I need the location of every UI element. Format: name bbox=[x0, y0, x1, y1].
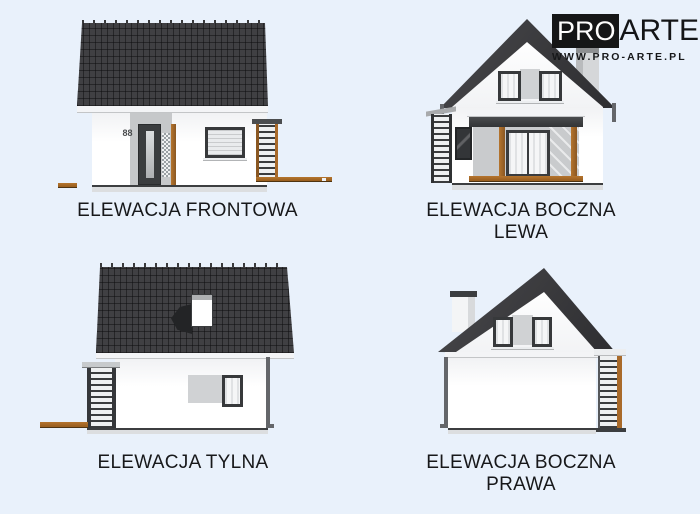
right-foundation bbox=[448, 430, 596, 434]
right-trellis bbox=[598, 356, 622, 428]
rear-wall-panel bbox=[188, 375, 222, 403]
rear-trellis bbox=[87, 368, 116, 428]
pro-arte-logo: PRO ARTE WWW.PRO-ARTE.PL bbox=[552, 14, 694, 63]
rear-foundation bbox=[87, 430, 268, 434]
left-gable-window-sill bbox=[496, 101, 564, 104]
logo-wordmark: PRO ARTE bbox=[552, 14, 694, 48]
left-elevation-label-line1: ELEWACJA BOCZNA bbox=[408, 200, 634, 222]
left-gable-window-2 bbox=[539, 71, 562, 101]
left-elevation-label: ELEWACJA BOCZNA LEWA bbox=[408, 200, 634, 244]
left-gable-panel bbox=[520, 69, 540, 99]
left-porch-deck bbox=[469, 176, 583, 182]
right-trellis-base bbox=[594, 428, 626, 432]
front-doorside-panel bbox=[162, 133, 170, 177]
rear-elevation-label: ELEWACJA TYLNA bbox=[53, 452, 313, 474]
left-elevation-label-line2: LEWA bbox=[408, 222, 634, 244]
left-porch-roof bbox=[469, 117, 583, 127]
right-downspout bbox=[444, 357, 448, 428]
front-eaves-fascia bbox=[77, 106, 268, 113]
front-roof bbox=[77, 20, 268, 106]
right-elevation-label-line1: ELEWACJA BOCZNA bbox=[408, 452, 634, 474]
right-chimney-cap bbox=[450, 291, 477, 297]
rear-roof-ridge-trim bbox=[100, 263, 287, 267]
front-terrace-notch bbox=[322, 178, 326, 181]
right-gable-window-2 bbox=[532, 317, 552, 347]
right-elevation-label-line2: PRAWA bbox=[408, 474, 634, 496]
left-trellis bbox=[431, 114, 452, 183]
front-door bbox=[138, 124, 161, 185]
right-wall bbox=[448, 358, 596, 428]
front-elevation-label: ELEWACJA FRONTOWA bbox=[50, 200, 325, 222]
left-gable-window-1 bbox=[498, 71, 521, 101]
house-number: 88 bbox=[119, 128, 136, 138]
left-dark-window bbox=[455, 127, 472, 160]
blueprint-sheet: PRO ARTE WWW.PRO-ARTE.PL 88 ELEWACJA FRO… bbox=[0, 0, 700, 514]
left-patio-door bbox=[506, 130, 550, 177]
left-foundation bbox=[452, 185, 603, 190]
front-porch-post bbox=[171, 124, 176, 185]
front-terrace-deck bbox=[256, 177, 332, 182]
rear-terrace-deck bbox=[40, 422, 88, 428]
rear-roof-skylight bbox=[191, 294, 213, 327]
left-patio-door-divider bbox=[527, 133, 529, 174]
front-door-glass bbox=[146, 131, 154, 178]
left-porch-post-1 bbox=[499, 127, 505, 177]
right-trellis-cap bbox=[594, 349, 626, 356]
front-left-deck-strip bbox=[58, 183, 77, 188]
front-window bbox=[205, 127, 245, 158]
right-gable-panel bbox=[512, 315, 533, 345]
logo-website: WWW.PRO-ARTE.PL bbox=[552, 51, 694, 63]
rear-downspout bbox=[266, 357, 270, 428]
right-gable-window-1 bbox=[493, 317, 513, 347]
logo-arte-text: ARTE bbox=[620, 14, 699, 48]
logo-pro-text: PRO bbox=[552, 14, 619, 48]
front-window-sill bbox=[203, 158, 247, 161]
front-trellis bbox=[256, 124, 278, 181]
rear-window bbox=[222, 375, 243, 407]
left-downspout-right bbox=[612, 103, 616, 122]
right-gable-window-sill bbox=[491, 347, 554, 350]
right-elevation-label: ELEWACJA BOCZNA PRAWA bbox=[408, 452, 634, 496]
front-roof-ridge-trim bbox=[82, 20, 265, 23]
left-porch-post-2 bbox=[571, 127, 577, 177]
front-foundation bbox=[92, 187, 267, 192]
rear-skylight-top-bar bbox=[192, 295, 212, 300]
right-downspout-foot bbox=[440, 424, 448, 428]
